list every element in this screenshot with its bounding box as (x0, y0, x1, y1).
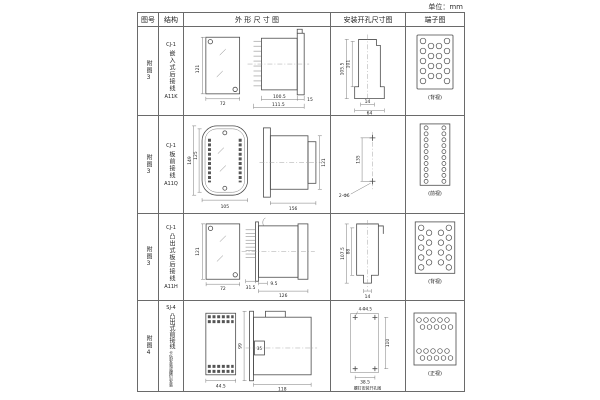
side-view (259, 128, 321, 205)
fig-label: 附图3 (145, 246, 151, 268)
model-label: CJ-1 (166, 143, 176, 149)
dim-front-h: 121 (195, 65, 201, 74)
row3-terminal-drawing: (背视) (406, 214, 464, 300)
row1-struct: CJ-1 嵌入式后接线 A11K (159, 27, 184, 116)
front-view (201, 224, 240, 286)
dim-side-h: 121 (321, 158, 327, 167)
dim-m-b1: 14 (365, 99, 371, 105)
row4-mounting-drawing: 4-Φ4.5 110 38.5 螺钉安装开孔图 (331, 301, 405, 391)
dim-rail: 35 (257, 346, 263, 351)
row4-mounting: 4-Φ4.5 110 38.5 螺钉安装开孔图 (331, 301, 406, 391)
terminal-caption: (背视) (428, 278, 442, 285)
dim-m-v1: 105.5 (339, 63, 345, 76)
row1-fig: 附图3 (138, 27, 159, 116)
row3-outline-drawing: 121 72 31.5 9.5 126 (184, 214, 330, 300)
dim-side-w: 156 (289, 206, 298, 212)
row1-mounting: 105.5 101 14 64 (331, 27, 406, 116)
dim-side-b: 9.5 (270, 281, 277, 287)
row4-terminal: (正视) (406, 301, 464, 391)
code-label: A11K (164, 94, 177, 100)
mount-note: 卡轨安装或螺钉安装 (169, 351, 173, 387)
terminal-pins (418, 225, 451, 270)
row2-struct: CJ-1 板前接线 A11Q (159, 116, 184, 214)
dim-side-h: 99 (238, 343, 244, 349)
struct-label: 凸出式前接线 (168, 313, 174, 349)
row2-terminal-drawing: (前视) (406, 116, 464, 213)
unit-label: 单位：mm (337, 2, 463, 12)
row4-struct: SJ-4 凸出式前接线 卡轨安装或螺钉安装 (159, 301, 184, 391)
row4-outline: 35 99 118 44.5 (184, 301, 331, 391)
dim-m-v2: 101 (346, 60, 352, 69)
front-view (192, 126, 247, 202)
terminal-caption: (正视) (428, 370, 442, 377)
row2-outline: 149 125 105 156 121 (184, 116, 331, 214)
side-view (242, 218, 315, 293)
header-fig: 图号 (138, 13, 159, 27)
dim-front-h2: 125 (193, 151, 199, 160)
dim-m-v1: 107.5 (340, 247, 346, 260)
row3-struct: CJ-1 凸出式板后接线 A11H (159, 214, 184, 301)
dim-front-w: 105 (221, 204, 230, 210)
terminal-caption: (前视) (428, 190, 442, 197)
row2-mounting-drawing: 135 2-Φ6 (331, 116, 405, 213)
row1-outline: 121 72 100.5 111.5 15 (184, 27, 331, 116)
code-label: A11Q (164, 181, 178, 187)
mounting-caption: 螺钉安装开孔图 (354, 385, 382, 390)
terminal-pins (417, 318, 453, 361)
model-label: SJ-4 (166, 305, 175, 311)
dim-side-b: 111.5 (272, 102, 285, 108)
model-label: CJ-1 (166, 42, 176, 48)
code-label: A11H (164, 284, 178, 290)
dim-m-b2: 64 (367, 110, 373, 115)
header-terminal: 端子图 (406, 13, 464, 27)
screw-holes (353, 315, 378, 371)
dim-m-v: 110 (385, 339, 391, 348)
row3-outline: 121 72 31.5 9.5 126 (184, 214, 331, 301)
dim-front-w: 44.5 (216, 384, 226, 390)
dim-m-v2: 88 (346, 249, 352, 255)
dim-side-a: 100.5 (273, 94, 286, 100)
fig-label: 附图3 (145, 154, 151, 176)
fig-label: 附图3 (145, 60, 151, 82)
front-view (206, 313, 236, 383)
row3-fig: 附图3 (138, 214, 159, 301)
hole-label: 2-Φ6 (339, 193, 350, 199)
header-outline: 外 形 尺 寸 图 (184, 13, 331, 27)
dim-front-h: 121 (195, 247, 201, 256)
front-view (201, 37, 240, 101)
dim-side-a: 31.5 (246, 285, 256, 291)
dim-front-h1: 149 (187, 156, 193, 165)
dim-side-c: 126 (279, 293, 288, 299)
row1-outline-drawing: 121 72 100.5 111.5 15 (184, 27, 330, 115)
row2-terminal: (前视) (406, 116, 464, 214)
struct-label: 板前接线 (168, 151, 174, 179)
hole-label: 4-Φ4.5 (359, 306, 373, 311)
fig-label: 附图4 (145, 335, 151, 357)
row4-terminal-drawing: (正视) (406, 301, 464, 391)
row4-fig: 附图4 (138, 301, 159, 391)
row4-outline-drawing: 35 99 118 44.5 (184, 301, 330, 391)
dim-side-c: 15 (307, 97, 313, 103)
row1-terminal-drawing: (背视) (406, 27, 464, 115)
struct-label: 嵌入式后接线 (168, 50, 174, 92)
struct-label: 凸出式板后接线 (168, 233, 174, 282)
dim-side-w: 118 (278, 387, 287, 391)
row2-fig: 附图3 (138, 116, 159, 214)
row1-mounting-drawing: 105.5 101 14 64 (331, 27, 405, 115)
dim-front-w: 72 (220, 286, 226, 292)
dim-m-b1: 14 (365, 294, 371, 300)
header-mounting: 安装开孔尺寸图 (331, 13, 406, 27)
header-struct: 结构 (159, 13, 184, 27)
row3-terminal: (背视) (406, 214, 464, 301)
row3-mounting-drawing: 107.5 88 14 (331, 214, 405, 300)
row2-outline-drawing: 149 125 105 156 121 (184, 116, 330, 213)
row1-terminal: (背视) (406, 27, 464, 116)
side-view (243, 311, 317, 386)
terminal-pins (424, 126, 446, 183)
terminal-pins (420, 38, 450, 84)
row2-mounting: 135 2-Φ6 (331, 116, 406, 214)
terminal-caption: (背视) (428, 94, 442, 101)
dim-front-w: 72 (220, 101, 226, 107)
dim-m-v: 135 (356, 155, 362, 164)
row3-mounting: 107.5 88 14 (331, 214, 406, 301)
catalog-page: 单位：mm 图号 结构 外 形 尺 寸 图 安装开孔尺寸图 端子图 附图3 CJ… (0, 0, 600, 400)
model-label: CJ-1 (166, 225, 176, 231)
dimension-table: 图号 结构 外 形 尺 寸 图 安装开孔尺寸图 端子图 附图3 CJ-1 嵌入式… (137, 12, 465, 392)
